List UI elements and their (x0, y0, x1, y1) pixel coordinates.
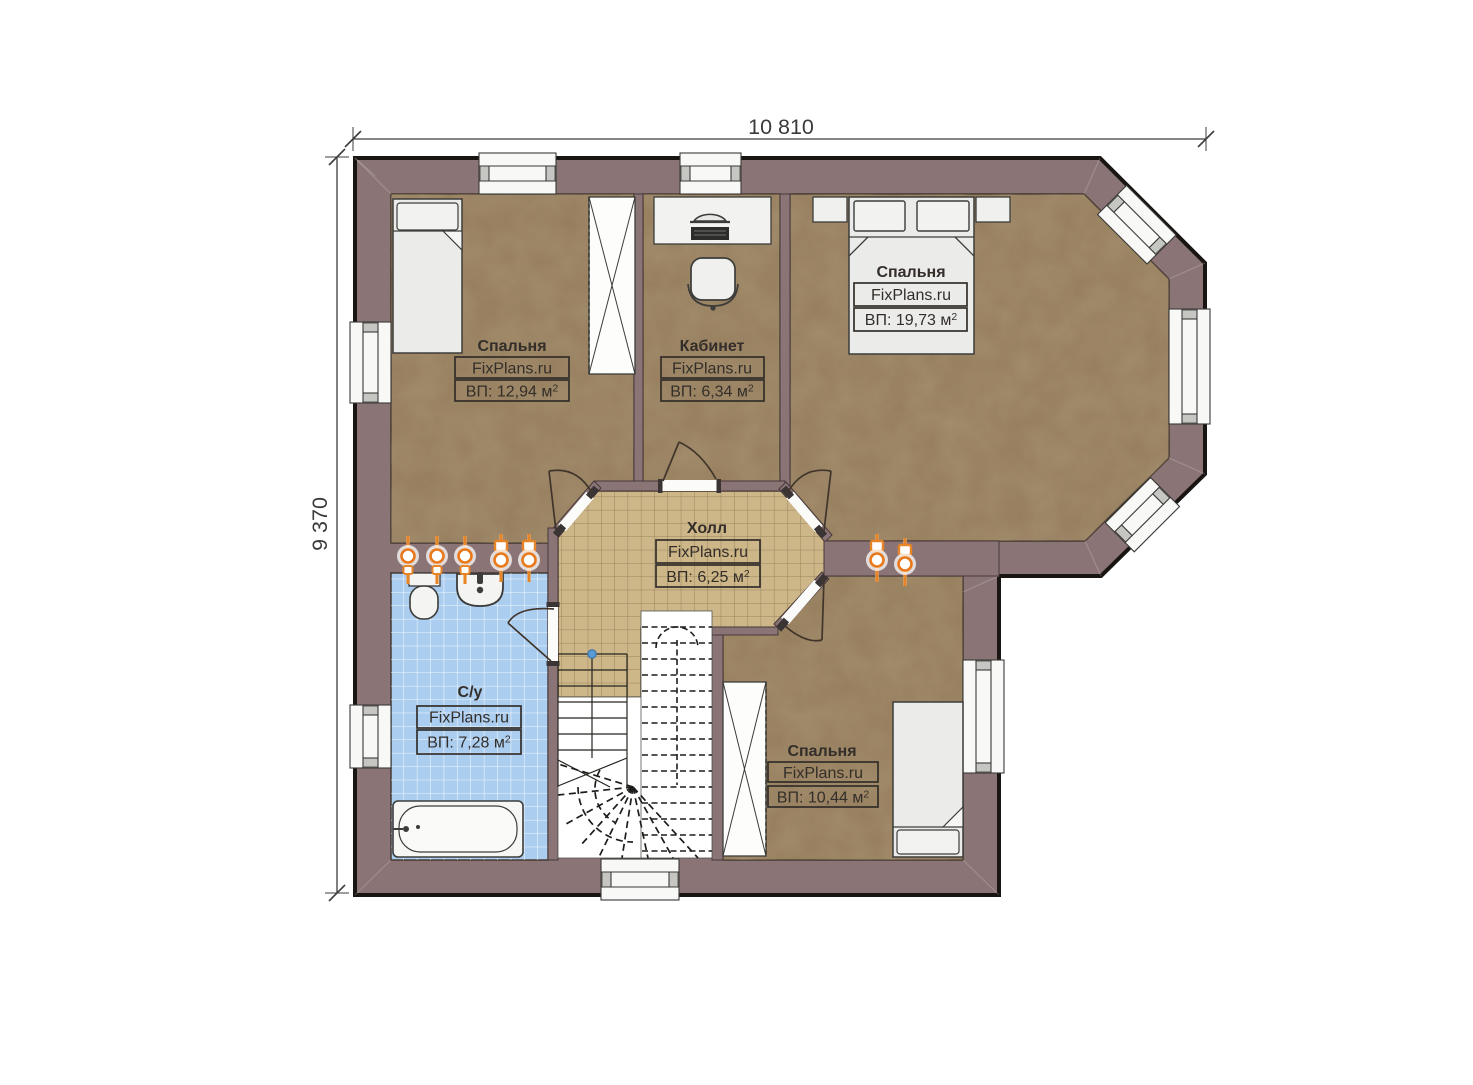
svg-text:FixPlans.ru: FixPlans.ru (668, 544, 748, 561)
svg-text:С/у: С/у (458, 684, 483, 701)
svg-text:FixPlans.ru: FixPlans.ru (429, 710, 509, 727)
svg-text:Спальня: Спальня (787, 743, 856, 760)
svg-text:FixPlans.ru: FixPlans.ru (783, 765, 863, 782)
svg-text:9 370: 9 370 (308, 497, 332, 551)
svg-text:Спальня: Спальня (477, 338, 546, 355)
svg-text:Кабинет: Кабинет (680, 338, 745, 355)
svg-text:FixPlans.ru: FixPlans.ru (871, 287, 951, 304)
svg-text:ВП: 19,73 м2: ВП: 19,73 м2 (865, 311, 958, 329)
svg-text:ВП: 6,34 м2: ВП: 6,34 м2 (670, 383, 754, 401)
svg-text:10 810: 10 810 (748, 115, 814, 139)
svg-text:ВП: 7,28 м2: ВП: 7,28 м2 (427, 734, 511, 752)
svg-text:ВП: 12,94 м2: ВП: 12,94 м2 (466, 383, 559, 401)
svg-text:FixPlans.ru: FixPlans.ru (672, 361, 752, 378)
svg-text:ВП: 6,25 м2: ВП: 6,25 м2 (666, 568, 750, 586)
svg-text:Холл: Холл (687, 520, 727, 537)
svg-text:FixPlans.ru: FixPlans.ru (472, 361, 552, 378)
svg-text:Спальня: Спальня (876, 264, 945, 281)
svg-text:ВП: 10,44 м2: ВП: 10,44 м2 (777, 789, 870, 807)
